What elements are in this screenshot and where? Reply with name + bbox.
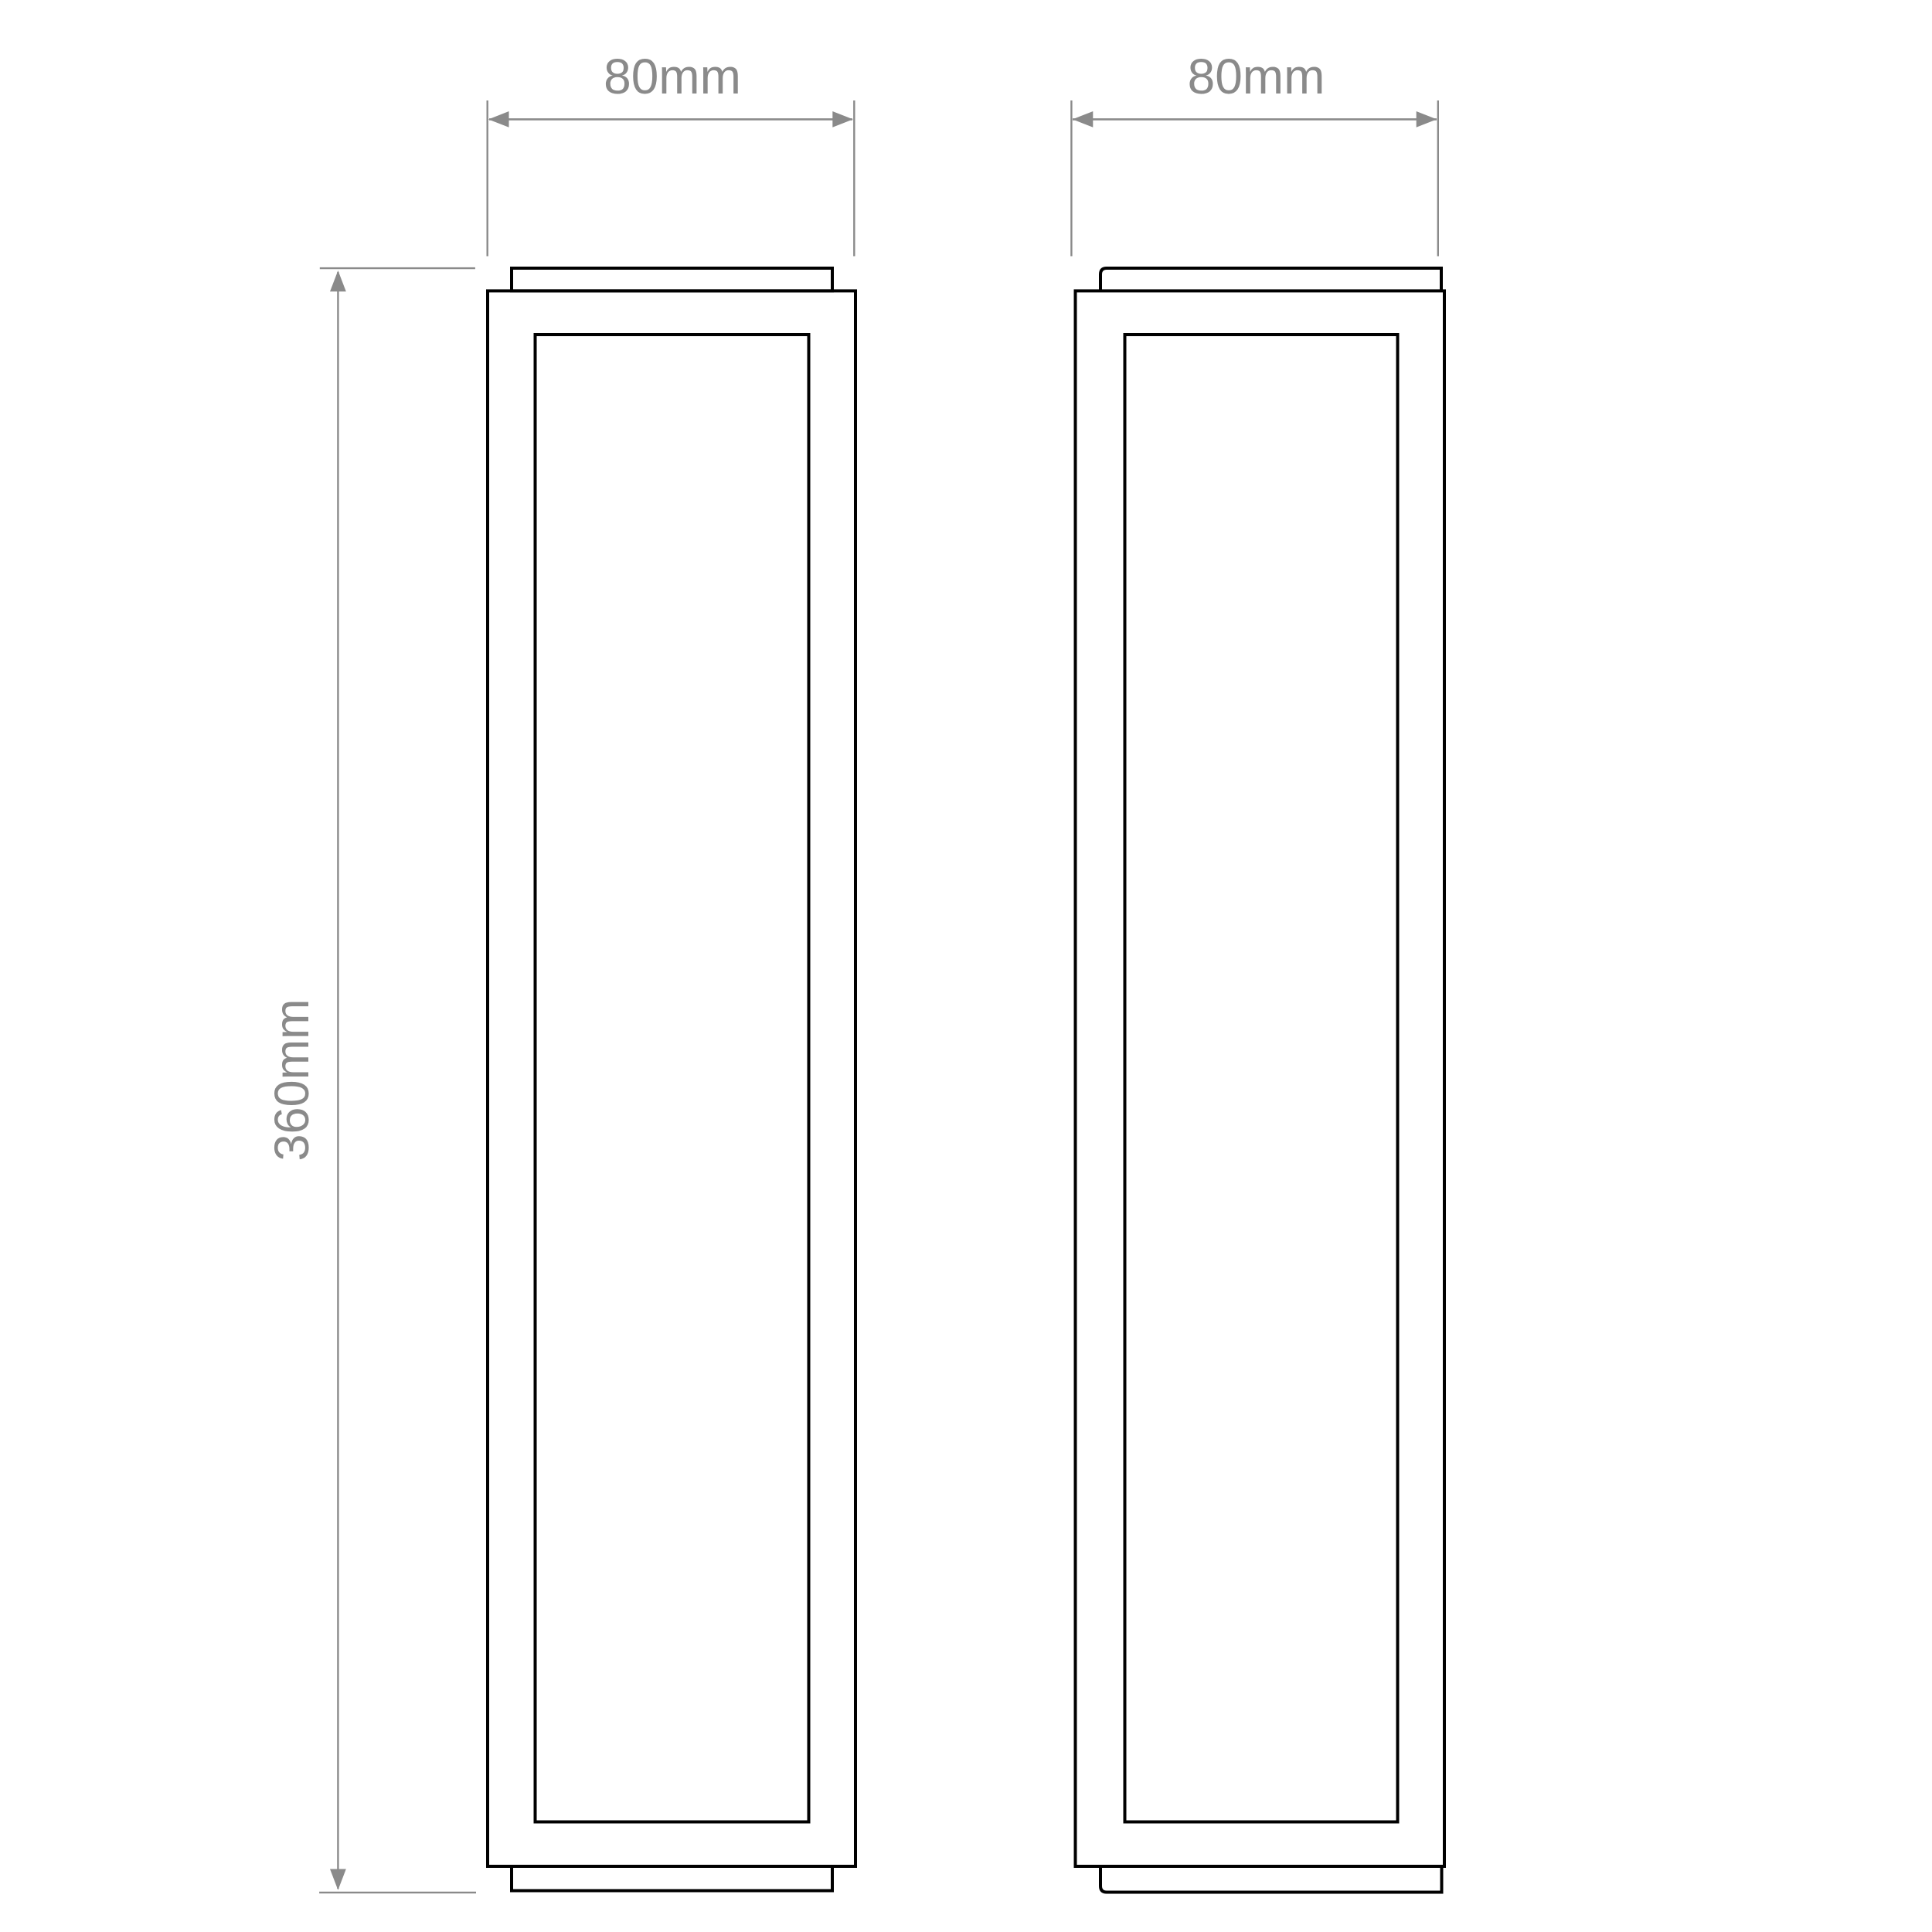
svg-text:80mm: 80mm: [604, 49, 741, 104]
svg-text:80mm: 80mm: [1188, 49, 1325, 104]
svg-text:360mm: 360mm: [265, 998, 319, 1161]
